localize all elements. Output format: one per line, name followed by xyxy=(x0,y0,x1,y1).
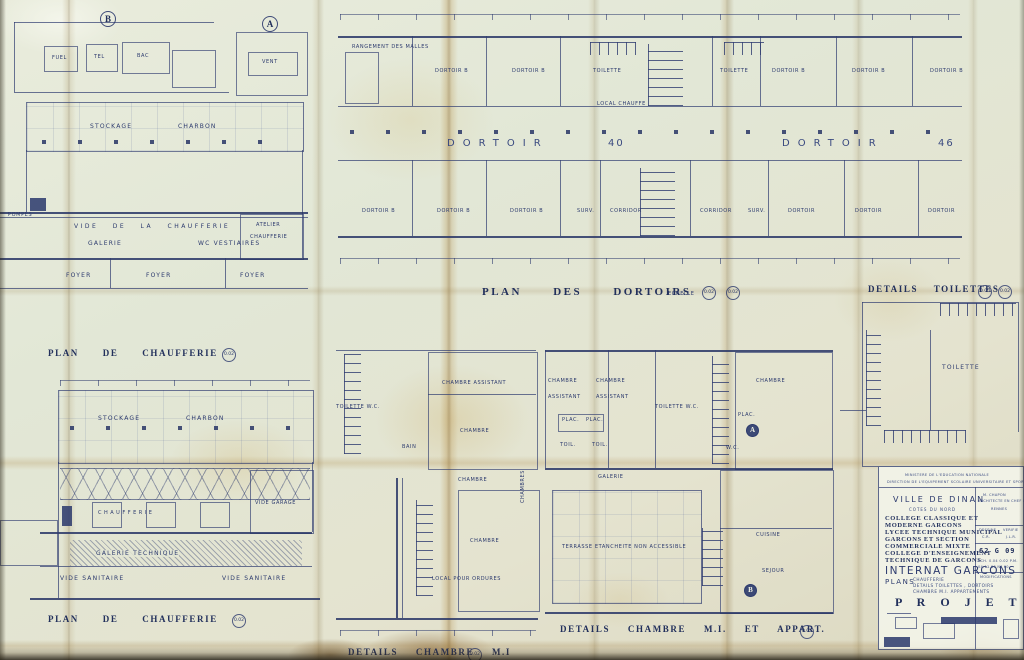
room-label-foyer-1: FOYER xyxy=(66,272,91,279)
equipment xyxy=(62,506,72,526)
stair-detail xyxy=(416,500,433,596)
room-label-toilette-wc: TOILETTE W.C. xyxy=(336,404,380,410)
wall xyxy=(14,22,15,92)
wall xyxy=(600,160,601,236)
wall xyxy=(110,258,111,288)
column-row xyxy=(350,130,950,134)
fold-crease xyxy=(312,0,324,660)
room-label-assistant-l1: ASSISTANT xyxy=(548,394,581,400)
dimension-extension xyxy=(840,410,866,411)
room-label: DORTOIR B xyxy=(437,208,470,214)
room-label-toilette-wc-2: TOILETTE W.C. xyxy=(655,404,699,410)
wall xyxy=(912,36,913,106)
room-label: TOILETTE xyxy=(720,68,748,74)
wall xyxy=(338,236,962,238)
divider xyxy=(975,543,1023,544)
wall xyxy=(486,160,487,236)
wall xyxy=(396,478,398,618)
room-label-vide-sanitaire-1: VIDE SANITAIRE xyxy=(60,575,124,582)
room-label-bain: BAIN xyxy=(402,444,416,450)
room-label: DORTOIR B xyxy=(510,208,543,214)
room-label: DORTOIR xyxy=(788,208,815,214)
wall xyxy=(545,350,546,468)
title-plan-chaufferie: PLAN DE CHAUFFERIE xyxy=(48,348,218,358)
wall xyxy=(486,36,487,106)
room-label: CORRIDOR xyxy=(700,208,732,214)
dimension-line xyxy=(340,14,960,20)
room-label-toil-1: TOIL. xyxy=(560,442,576,448)
sketch-dark-box xyxy=(884,637,910,647)
hall-number-46: 46 xyxy=(938,138,955,149)
wall xyxy=(412,160,413,236)
room-label: DORTOIR xyxy=(928,208,955,214)
detail-marker-a: A xyxy=(262,16,278,32)
wall xyxy=(336,618,538,620)
ministry-line-1: MINISTERE DE L'EDUCATION NATIONALE xyxy=(905,473,989,477)
room-label-chambre-r: CHAMBRE xyxy=(756,378,785,384)
ministry-line-2: DIRECTION DE L'EQUIPEMENT SCOLAIRE UNIVE… xyxy=(887,480,1024,484)
scale-bubble: 0.02 xyxy=(726,286,740,300)
table-value: C.R. xyxy=(982,535,990,540)
wall xyxy=(402,478,403,618)
room-label-foyer-3: FOYER xyxy=(240,272,265,279)
room-label-chambre-l2: CHAMBRE xyxy=(596,378,625,384)
sketch-box xyxy=(1003,619,1019,639)
sketch-line xyxy=(887,613,911,614)
room-label-assistant-l2: ASSISTANT xyxy=(596,394,629,400)
sketch-building-bar xyxy=(941,617,997,624)
room-label-pompes: POMPES xyxy=(8,212,32,218)
room-label-local-ordures: LOCAL POUR ORDURES xyxy=(432,576,501,582)
wall xyxy=(412,36,413,106)
hall-label-dortoir-46: DORTOIR xyxy=(782,138,884,149)
wall xyxy=(768,160,769,236)
room-label-charbon: CHARBON xyxy=(186,415,225,422)
room-label-cuisine: CUISINE xyxy=(756,532,780,538)
dossier-number: 62 G 09 xyxy=(979,547,1016,555)
room-label-chambre-2: CHAMBRE xyxy=(458,477,487,483)
title-block: MINISTERE DE L'EDUCATION NATIONALE DIREC… xyxy=(878,466,1024,650)
dimension-line xyxy=(340,630,536,636)
title-details-chambre: DETAILS CHAMBRE M.I xyxy=(348,647,511,657)
room-label: SURV. xyxy=(748,208,765,214)
stairwell xyxy=(640,168,675,236)
detail-marker-b2: B xyxy=(744,584,757,597)
wall xyxy=(14,92,229,93)
divider xyxy=(975,525,1023,526)
room-label-tel: TEL xyxy=(94,54,105,60)
room-label: DORTOIR B xyxy=(852,68,885,74)
wall xyxy=(338,36,962,38)
room-label-stockage: STOCKAGE xyxy=(90,123,132,130)
room-label: SURV. xyxy=(577,208,594,214)
room-label: DORTOIR B xyxy=(772,68,805,74)
wall xyxy=(30,598,320,600)
wall xyxy=(918,160,919,236)
scale-bubble: 0.02 xyxy=(232,614,246,628)
room-label-atelier: ATELIER xyxy=(256,222,280,228)
room-label-galerie-2: GALERIE xyxy=(598,474,624,480)
wall xyxy=(0,288,308,289)
wall xyxy=(40,532,312,534)
toilet-stalls xyxy=(940,303,1016,316)
column-row xyxy=(70,426,300,430)
scale-bubble: 0.02 xyxy=(222,348,236,362)
dimension-line xyxy=(60,380,310,386)
establishment-line: COLLEGE CLASSIQUE ET xyxy=(885,515,979,522)
room-label-toilette: TOILETTE xyxy=(942,364,980,371)
establishment-line: TECHNIQUE DE GARCONS xyxy=(885,557,982,564)
room-label: DORTOIR B xyxy=(930,68,963,74)
room-label-fuel: FUEL xyxy=(52,55,67,61)
stockage-charbon-area xyxy=(26,102,304,152)
room-label-chambres-vertical: CHAMBRES xyxy=(520,470,526,503)
wall xyxy=(338,160,962,161)
wall xyxy=(1018,302,1019,432)
room-label-charbon: CHARBON xyxy=(178,123,217,130)
dept-name: COTES DU NORD xyxy=(909,507,956,512)
wall xyxy=(560,160,561,236)
title-plan-dortoirs: PLAN DES DORTOIRS xyxy=(482,286,691,298)
room-label-vide-chaufferie: VIDE DE LA CHAUFFERIE xyxy=(74,223,230,230)
hall-label-dortoir-40: DORTOIR xyxy=(447,138,549,149)
room-label-sejour: SEJOUR xyxy=(762,568,784,574)
date-line: 04.11.60 N° 60 xyxy=(978,565,1009,570)
wall xyxy=(862,302,863,466)
wall xyxy=(930,330,931,430)
table-value: J.L.R. xyxy=(1006,535,1016,540)
divider xyxy=(879,487,1023,488)
column-row xyxy=(42,140,292,144)
wall xyxy=(26,150,27,212)
chambre-assistant-area xyxy=(428,352,538,470)
room-label-terrasse: TERRASSE ETANCHEITE NON ACCESSIBLE xyxy=(562,544,686,550)
room-label-vestiaires: WC VESTIAIRES xyxy=(198,240,260,247)
wall xyxy=(545,612,833,614)
room-label-foyer-2: FOYER xyxy=(146,272,171,279)
appartement-area xyxy=(720,470,834,614)
plans-label: PLANS xyxy=(885,578,915,586)
scale-bubble: 0.02 xyxy=(998,285,1012,299)
annex-room xyxy=(250,470,314,534)
wall xyxy=(225,258,226,288)
wall xyxy=(720,528,832,529)
room-label-plac-r: PLAC. xyxy=(738,412,755,418)
wall xyxy=(608,350,609,468)
room-label-chambre-3: CHAMBRE xyxy=(470,538,499,544)
toilet-stalls xyxy=(866,330,881,426)
detail-marker-a2: A xyxy=(746,424,759,437)
dimension-line xyxy=(340,258,960,264)
room-label-chambre: CHAMBRE xyxy=(460,428,489,434)
room-label-rangement: RANGEMENT DES MALLES xyxy=(352,44,429,50)
stage-projet: P R O J E T xyxy=(895,595,1022,610)
wall xyxy=(690,160,691,236)
scale-bubble: 0.02 xyxy=(702,286,716,300)
wall xyxy=(40,566,312,567)
wall xyxy=(844,160,845,236)
table-header: DESSINE xyxy=(979,528,996,533)
architect-line: RENNES xyxy=(991,507,1007,512)
room-label-chaufferie: CHAUFFERIE xyxy=(98,510,154,516)
room-label: DORTOIR xyxy=(855,208,882,214)
appart-rooms xyxy=(735,352,833,470)
boiler xyxy=(200,502,230,528)
room-label: DORTOIR B xyxy=(362,208,395,214)
title-details-chambre-appart: DETAILS CHAMBRE M.I. ET APPART. xyxy=(560,624,825,634)
wall xyxy=(338,106,962,107)
chambre-area xyxy=(458,490,540,612)
room-label-chambre-l1: CHAMBRE xyxy=(548,378,577,384)
room-label-plac-1: PLAC. xyxy=(562,417,579,423)
room-label-vent: VENT xyxy=(262,59,278,65)
divider xyxy=(975,572,1023,573)
paper-edge-bottom xyxy=(0,647,1024,660)
sketch-box xyxy=(923,623,955,639)
room-label-galerie-technique: GALERIE TECHNIQUE xyxy=(96,550,179,557)
wall xyxy=(712,36,713,106)
elevator-shaft xyxy=(345,52,379,104)
establishment-line: GARCONS ET SECTION xyxy=(885,536,969,543)
modifications-label: MODIFICATIONS xyxy=(980,575,1012,580)
room-label-toil-2: TOIL. xyxy=(592,442,608,448)
table-header: VERIFIE xyxy=(1003,528,1018,533)
blueprint-sheet: B A FUEL TEL BAC VENT STOCKAGE CHARBON P… xyxy=(0,0,1024,660)
wall xyxy=(836,36,837,106)
establishment-line: COMMERCIALE MIXTE xyxy=(885,543,971,550)
wall xyxy=(560,36,561,106)
establishment-line: COLLEGE D'ENSEIGNEMENT xyxy=(885,550,992,557)
establishment-line: MODERNE GARCONS xyxy=(885,522,962,529)
room-label-wc: W.C. xyxy=(726,445,739,451)
toilet-stalls xyxy=(884,430,966,443)
room-label-local: LOCAL CHAUFFE xyxy=(597,101,646,107)
pump-room xyxy=(30,198,46,211)
room-label-chambre-assistant: CHAMBRE ASSISTANT xyxy=(442,380,506,386)
room-label-bac: BAC xyxy=(137,53,149,59)
side-room xyxy=(0,520,58,566)
room-label: TOILETTE xyxy=(593,68,621,74)
wall xyxy=(312,462,313,532)
room-box xyxy=(172,50,216,88)
room-label-vide-sanitaire-2: VIDE SANITAIRE xyxy=(222,575,286,582)
toilet-stalls xyxy=(590,42,636,55)
room-label-galerie: GALERIE xyxy=(88,240,122,247)
echelle-label: ECHELLE xyxy=(668,291,695,297)
room-label: DORTOIR B xyxy=(435,68,468,74)
hall-number-40: 40 xyxy=(608,138,625,149)
sketch-box xyxy=(895,617,917,629)
toilet-stalls xyxy=(724,42,764,55)
room-label-plac-2: PLAC. xyxy=(586,417,603,423)
scale-bubble: 0.02 xyxy=(800,625,814,639)
room-label-stockage: STOCKAGE xyxy=(98,415,140,422)
room-label: CORRIDOR xyxy=(610,208,642,214)
stairwell xyxy=(648,44,683,106)
wall xyxy=(0,258,308,260)
scale-bubble: 0.05 xyxy=(978,285,992,299)
city-name: VILLE DE DINAN xyxy=(893,495,985,504)
fold-crease xyxy=(440,0,458,660)
detail-marker-b: B xyxy=(100,11,116,27)
room-label: DORTOIR B xyxy=(512,68,545,74)
scale-line: ECH. 0.04 0.02 P.M. xyxy=(978,559,1018,564)
architect-line: ARCHITECTE EN CHEF DES BATIMENTS xyxy=(978,499,1024,504)
wall xyxy=(14,22,214,23)
fold-crease xyxy=(0,640,1024,652)
title-plan-chaufferie-2: PLAN DE CHAUFFERIE xyxy=(48,614,218,624)
wall xyxy=(58,462,59,598)
architect-name: M. CHAPON xyxy=(983,493,1006,498)
wall xyxy=(428,394,536,395)
wall xyxy=(336,350,536,351)
scale-bubble: 0.02 xyxy=(468,648,482,660)
